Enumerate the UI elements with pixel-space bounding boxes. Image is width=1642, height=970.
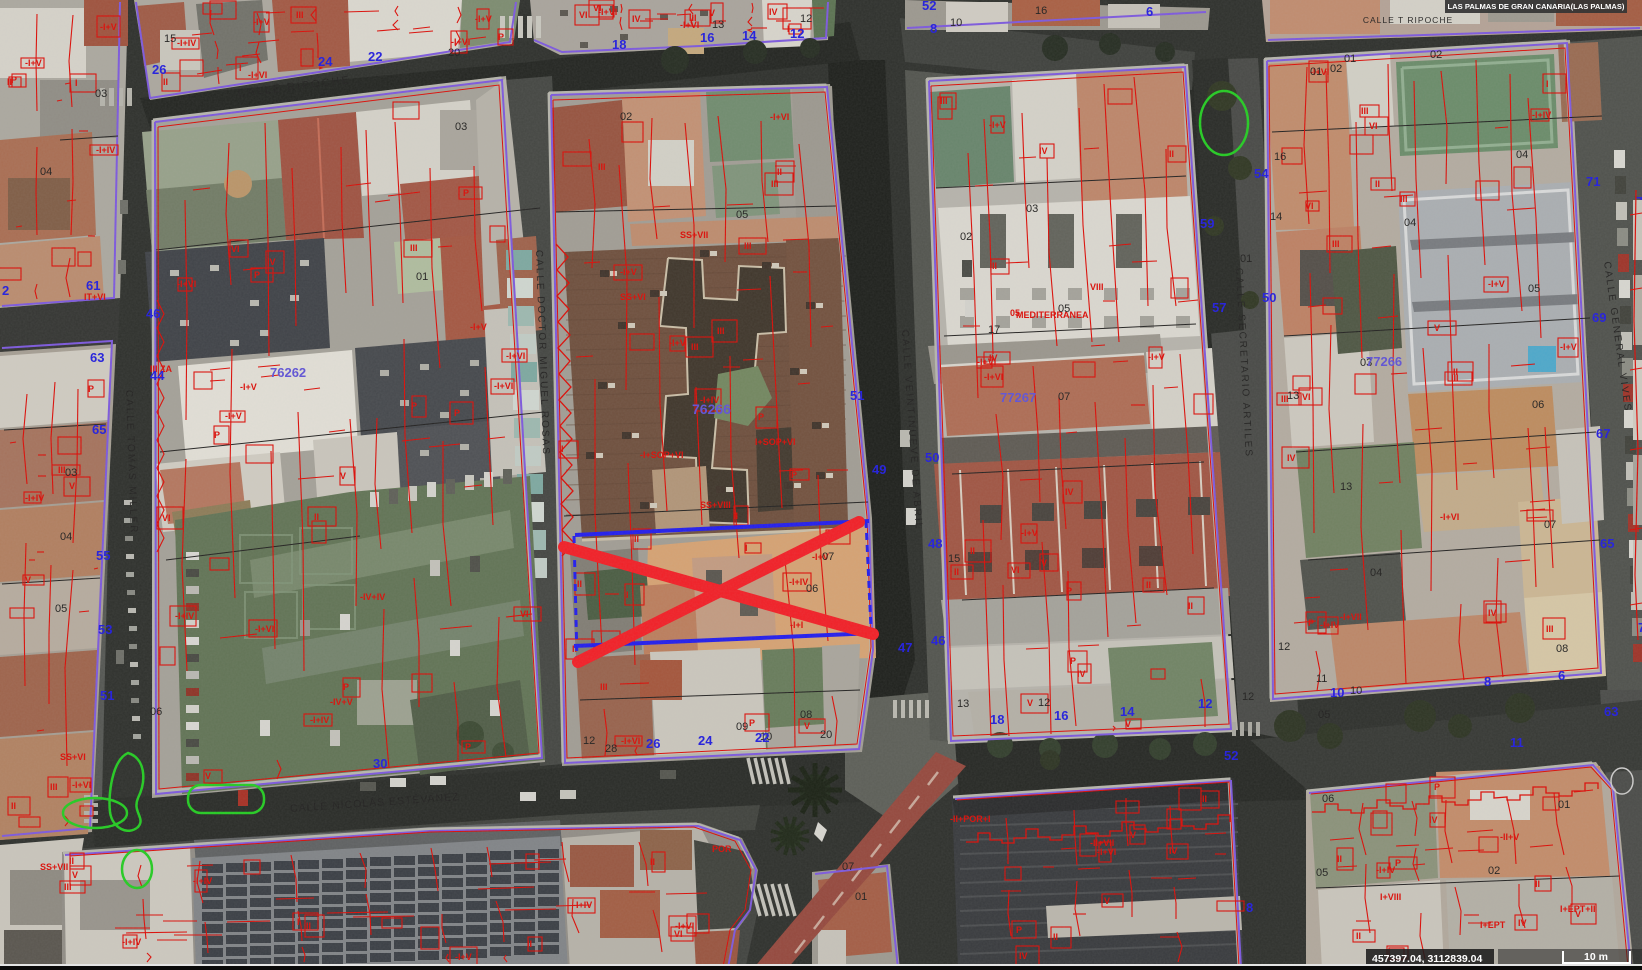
svg-text:10 m: 10 m (1584, 951, 1608, 963)
svg-text:LAS PALMAS DE GRAN CANARIA(LAS: LAS PALMAS DE GRAN CANARIA(LAS PALMAS) (1448, 2, 1625, 11)
svg-text:457397.04, 3112839.04: 457397.04, 3112839.04 (1372, 953, 1483, 965)
